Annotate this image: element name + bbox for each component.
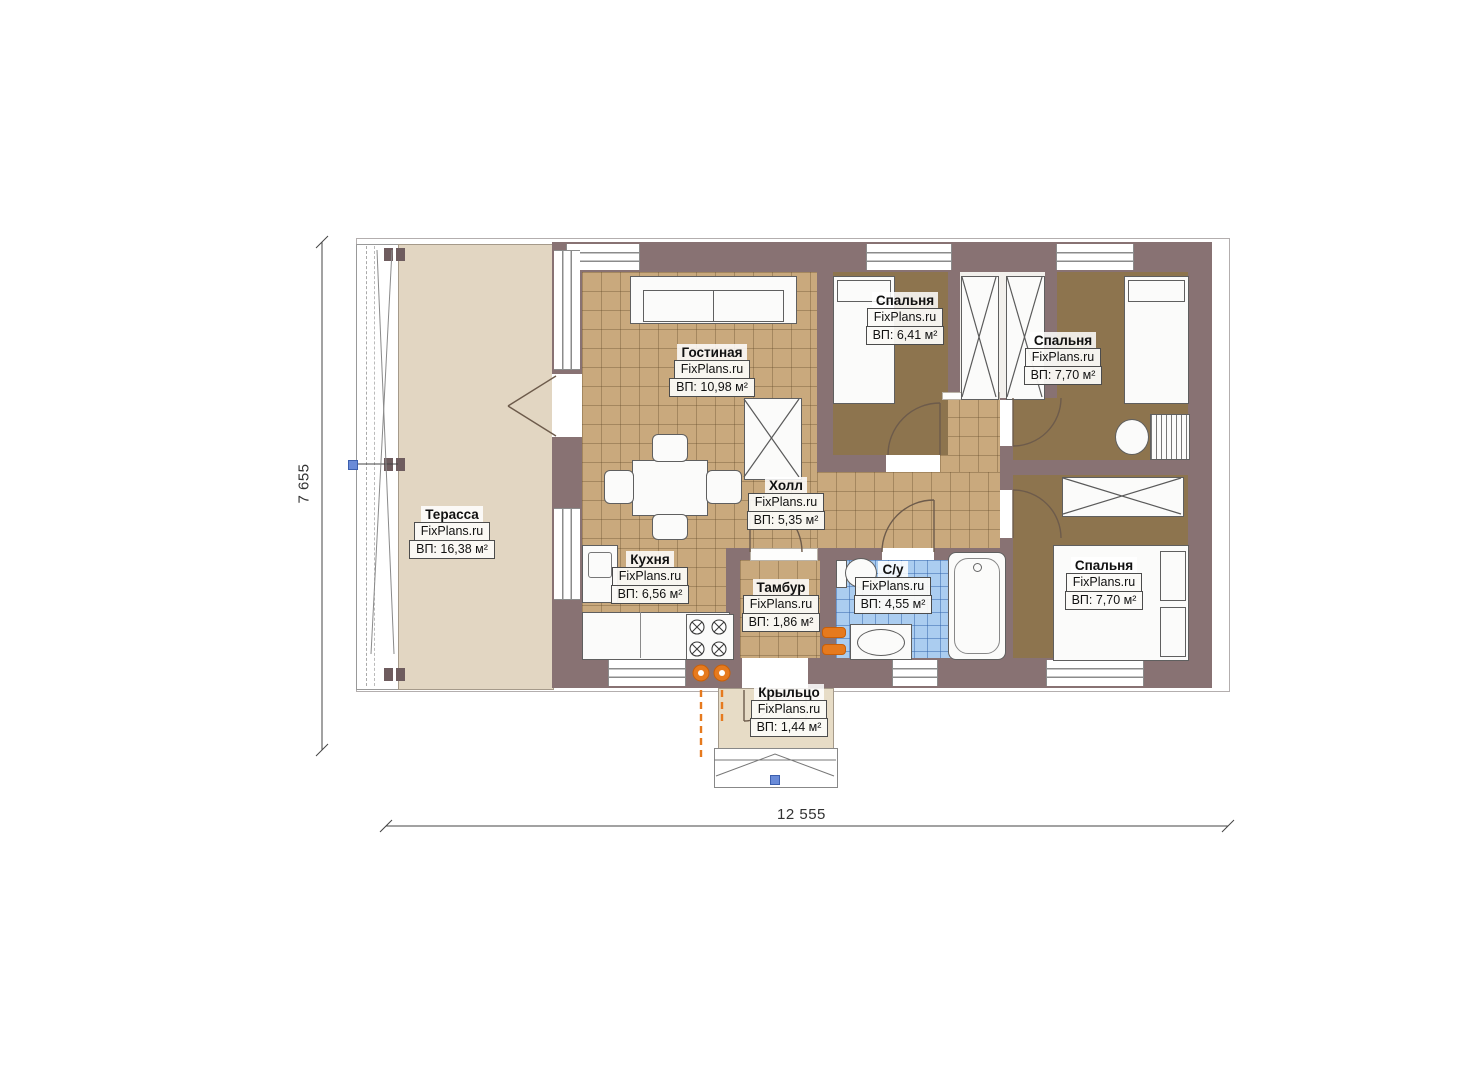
room-name: Спальня xyxy=(1030,332,1096,349)
terrace-post xyxy=(396,458,405,471)
floor-plan: Терасса FixPlans.ru ВП: 16,38 м² Гостина… xyxy=(0,0,1474,1080)
wardrobe-living xyxy=(744,398,802,480)
desk-chair xyxy=(1115,419,1149,455)
watermark: FixPlans.ru xyxy=(1025,348,1102,367)
room-area: ВП: 10,98 м² xyxy=(669,378,755,397)
watermark: FixPlans.ru xyxy=(748,493,825,512)
room-name: Терасса xyxy=(421,506,483,523)
dining-table xyxy=(632,460,708,516)
wall-bedroom-right-bottom xyxy=(1013,460,1188,475)
terrace-edge-strip xyxy=(356,244,400,690)
bathtub xyxy=(948,552,1006,660)
room-area: ВП: 4,55 м² xyxy=(854,595,933,614)
room-name: Спальня xyxy=(872,292,938,309)
wardrobe-closet-left xyxy=(961,276,999,400)
room-name: Крыльцо xyxy=(754,684,823,701)
room-area: ВП: 7,70 м² xyxy=(1065,591,1144,610)
room-label-bathroom: С/у FixPlans.ru ВП: 4,55 м² xyxy=(845,561,941,614)
terrace-post xyxy=(384,248,393,261)
window-top-bedroom-top xyxy=(866,244,952,270)
window-left-living xyxy=(554,250,580,370)
terrace-post xyxy=(384,458,393,471)
room-area: ВП: 6,41 м² xyxy=(866,326,945,345)
dining-chair xyxy=(604,470,634,504)
window-left-kitchen xyxy=(554,508,580,600)
watermark: FixPlans.ru xyxy=(743,595,820,614)
room-area: ВП: 5,35 м² xyxy=(747,511,826,530)
bedroom-top-door-opening xyxy=(886,455,940,472)
watermark: FixPlans.ru xyxy=(414,522,491,541)
room-area: ВП: 7,70 м² xyxy=(1024,366,1103,385)
room-area: ВП: 16,38 м² xyxy=(409,540,495,559)
room-area: ВП: 1,44 м² xyxy=(750,718,829,737)
watermark: FixPlans.ru xyxy=(674,360,751,379)
pillow xyxy=(1160,551,1186,601)
pillow xyxy=(1128,280,1185,302)
room-label-bedroom-bottom: Спальня FixPlans.ru ВП: 7,70 м² xyxy=(1056,557,1152,610)
watermark: FixPlans.ru xyxy=(1066,573,1143,592)
reference-marker xyxy=(770,775,780,785)
terrace-post xyxy=(396,668,405,681)
watermark: FixPlans.ru xyxy=(751,700,828,719)
terrace-floor xyxy=(398,244,554,690)
terrace-door-opening xyxy=(552,374,582,437)
window-bottom-kitchen xyxy=(608,660,686,686)
wardrobe-bedroom-bottom xyxy=(1062,477,1184,517)
terrace-post xyxy=(396,248,405,261)
room-area: ВП: 6,56 м² xyxy=(611,585,690,604)
bedroom-bottom-door-opening xyxy=(1000,490,1013,538)
stove xyxy=(686,614,734,660)
bathtub-inner xyxy=(954,558,1000,654)
room-label-bedroom-right: Спальня FixPlans.ru ВП: 7,70 м² xyxy=(1015,332,1111,385)
room-name: Кухня xyxy=(626,551,673,568)
sofa-cushion xyxy=(643,290,714,322)
bedroom-right-door-opening xyxy=(1000,400,1013,446)
room-label-tambour: Тамбур FixPlans.ru ВП: 1,86 м² xyxy=(733,579,829,632)
desk xyxy=(1150,414,1190,460)
window-bottom-bathroom xyxy=(892,660,938,686)
room-label-living: Гостиная FixPlans.ru ВП: 10,98 м² xyxy=(664,344,760,397)
room-name: С/у xyxy=(878,561,907,578)
dimension-horizontal: 12 555 xyxy=(777,806,826,823)
watermark: FixPlans.ru xyxy=(867,308,944,327)
hall-corridor-floor xyxy=(940,398,1000,472)
hall-floor xyxy=(817,472,1000,548)
sofa xyxy=(630,276,797,324)
pillow xyxy=(1160,607,1186,657)
sofa-cushion xyxy=(713,290,784,322)
bed-bedroom-right xyxy=(1124,276,1189,404)
room-name: Гостиная xyxy=(677,344,746,361)
room-label-hall: Холл FixPlans.ru ВП: 5,35 м² xyxy=(738,477,834,530)
tambour-door-sill xyxy=(750,548,818,561)
room-name: Тамбур xyxy=(753,579,810,596)
dining-chair xyxy=(652,434,688,462)
room-name: Спальня xyxy=(1071,557,1137,574)
room-label-terrace: Терасса FixPlans.ru ВП: 16,38 м² xyxy=(404,506,500,559)
dining-chair xyxy=(706,470,742,504)
window-bottom-bedroom xyxy=(1046,660,1144,686)
bathroom-door-opening xyxy=(882,548,934,560)
room-label-kitchen: Кухня FixPlans.ru ВП: 6,56 м² xyxy=(602,551,698,604)
bathtub-drain xyxy=(973,563,982,572)
terrace-post xyxy=(384,668,393,681)
dining-chair xyxy=(652,514,688,540)
bathroom-sink xyxy=(857,629,905,656)
dimension-vertical: 7 655 xyxy=(296,463,313,503)
watermark: FixPlans.ru xyxy=(855,577,932,596)
bedroom-right-floor-extension xyxy=(1007,398,1057,460)
window-top-bedroom-right xyxy=(1056,244,1134,270)
room-label-bedroom-top: Спальня FixPlans.ru ВП: 6,41 м² xyxy=(857,292,953,345)
counter-divider xyxy=(640,612,641,658)
towel-radiator xyxy=(822,644,846,655)
watermark: FixPlans.ru xyxy=(612,567,689,586)
reference-marker xyxy=(348,460,358,470)
terrace-strip-dashed-line xyxy=(366,246,367,686)
room-name: Холл xyxy=(765,477,807,494)
room-label-porch: Крыльцо FixPlans.ru ВП: 1,44 м² xyxy=(741,684,837,737)
room-area: ВП: 1,86 м² xyxy=(742,613,821,632)
terrace-strip-dashed-line xyxy=(374,246,375,686)
